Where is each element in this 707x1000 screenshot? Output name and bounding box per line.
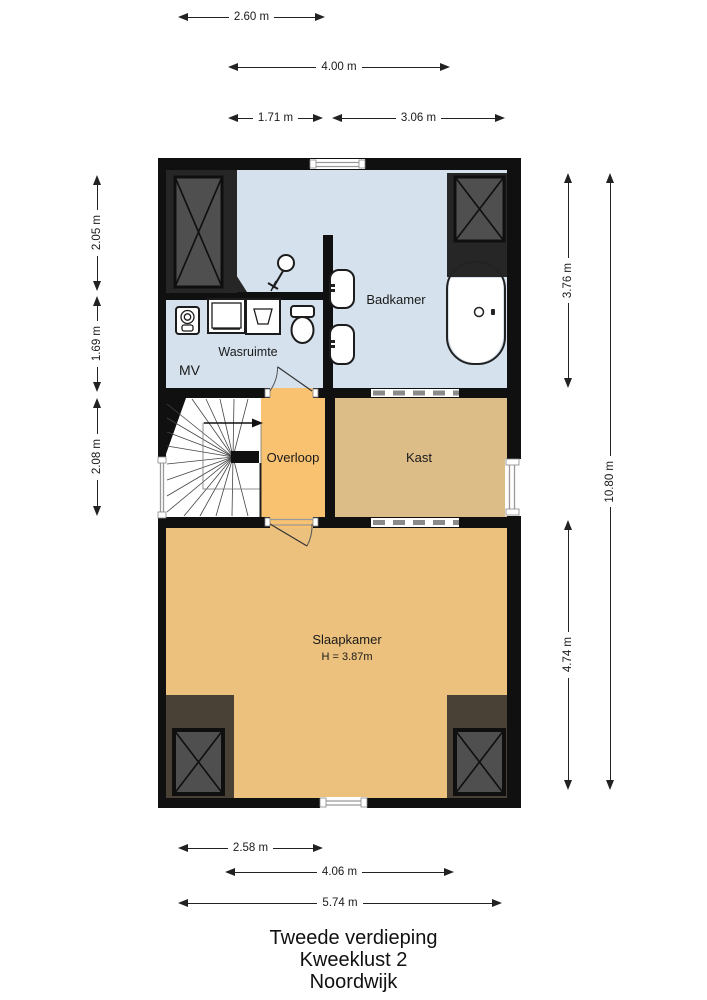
floorplan-page: Badkamer Wasruimte MV Overloop Kast Slaa… — [0, 0, 707, 1000]
closet-bottom-left — [166, 695, 234, 798]
dimension-right-3-76: 3.76 m — [561, 173, 575, 388]
dimension-top-3-06: 3.06 m — [332, 111, 505, 125]
laundry-sink — [246, 299, 280, 334]
dimension-right-4-74: 4.74 m — [561, 520, 575, 790]
closet-top-left — [166, 170, 247, 293]
bathroom-sink-2 — [330, 325, 354, 364]
room-label-slaapkamer: Slaapkamer — [297, 632, 397, 647]
dimension-right-10-80: 10.80 m — [603, 173, 617, 790]
window-top — [310, 159, 365, 169]
toilet — [291, 306, 314, 343]
dimension-bottom-2-58: 2.58 m — [178, 841, 323, 855]
dimension-left-2-05: 2.05 m — [90, 175, 104, 291]
dimension-top-1-71: 1.71 m — [228, 111, 323, 125]
window-left — [158, 457, 166, 518]
room-label-overloop: Overloop — [255, 450, 331, 465]
window-right — [505, 459, 521, 516]
plan-title: Tweede verdieping Kweeklust 2 Noordwijk — [0, 927, 707, 993]
plan-title-floor: Tweede verdieping — [0, 927, 707, 949]
dimension-top-4-00: 4.00 m — [228, 60, 450, 74]
room-label-wasruimte: Wasruimte — [200, 345, 296, 359]
plan-title-city: Noordwijk — [0, 971, 707, 993]
room-label-badkamer: Badkamer — [350, 292, 442, 307]
room-label-mv: MV — [179, 362, 211, 378]
dimension-top-2-60: 2.60 m — [178, 10, 325, 24]
dimension-left-2-08: 2.08 m — [90, 398, 104, 516]
mechanical-ventilation-unit — [176, 307, 199, 334]
room-label-kast: Kast — [383, 450, 455, 465]
washing-machine — [208, 299, 245, 333]
dimension-bottom-4-06: 4.06 m — [225, 865, 454, 879]
floor-plan-drawing — [0, 0, 707, 1000]
window-bottom — [320, 797, 367, 808]
dimension-bottom-5-74: 5.74 m — [178, 896, 502, 910]
dimension-left-1-69: 1.69 m — [90, 296, 104, 392]
closet-bottom-right — [447, 695, 507, 798]
plan-title-property: Kweeklust 2 — [0, 949, 707, 971]
room-height-note: H = 3.87m — [297, 651, 397, 663]
